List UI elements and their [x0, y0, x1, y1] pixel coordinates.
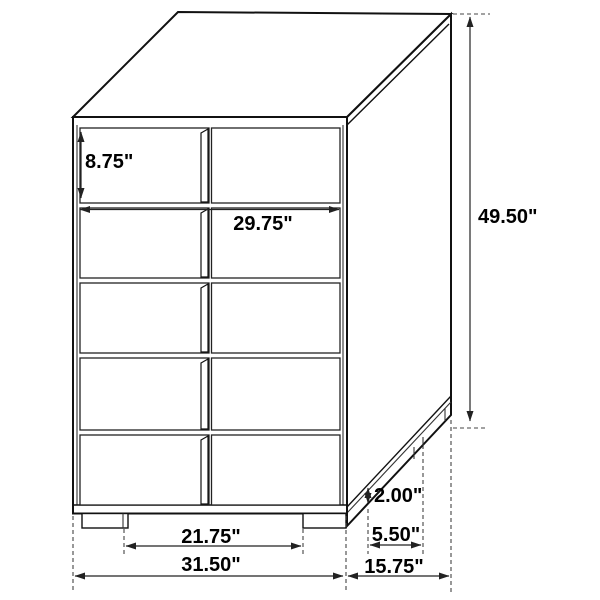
drawer-handle-row5 [201, 436, 208, 504]
dim-label-overall-depth: 15.75" [364, 556, 424, 578]
drawer-handle-row2 [201, 209, 208, 277]
furniture-dimension-diagram: 8.75" 29.75" 49.50" 2.00" 5.50" [0, 0, 600, 600]
drawer-handle-row3 [201, 284, 208, 352]
drawer-handle-row1 [201, 129, 208, 202]
drawer-row5-left [80, 435, 209, 505]
drawer-handles [201, 129, 208, 504]
front-leg-right [303, 514, 346, 529]
dim-label-front-leg-spacing: 21.75" [181, 526, 241, 548]
drawer-row2-left [80, 208, 209, 278]
dim-label-front-inner-width: 29.75" [233, 213, 293, 235]
chest-drawing [73, 12, 451, 528]
drawer-handle-row4 [201, 359, 208, 429]
dim-base-height: 2.00" [368, 485, 422, 507]
dim-front-leg-spacing: 21.75" [124, 526, 303, 554]
diagram-canvas: 8.75" 29.75" 49.50" 2.00" 5.50" [0, 0, 600, 600]
drawer-row4-left [80, 358, 209, 430]
drawer-row1-right [212, 128, 341, 203]
drawer-row5-right [212, 435, 341, 505]
drawer-row3-right [212, 283, 341, 353]
front-leg-left [82, 514, 128, 529]
dim-label-top-drawer-height: 8.75" [85, 151, 133, 173]
drawer-row3-left [80, 283, 209, 353]
dim-label-overall-width: 31.50" [181, 554, 241, 576]
dim-label-overall-height: 49.50" [478, 206, 538, 228]
dim-label-base-height: 2.00" [374, 485, 422, 507]
drawer-row4-right [212, 358, 341, 430]
dim-label-side-leg-spacing: 5.50" [372, 524, 420, 546]
dim-overall-height: 49.50" [453, 14, 538, 428]
